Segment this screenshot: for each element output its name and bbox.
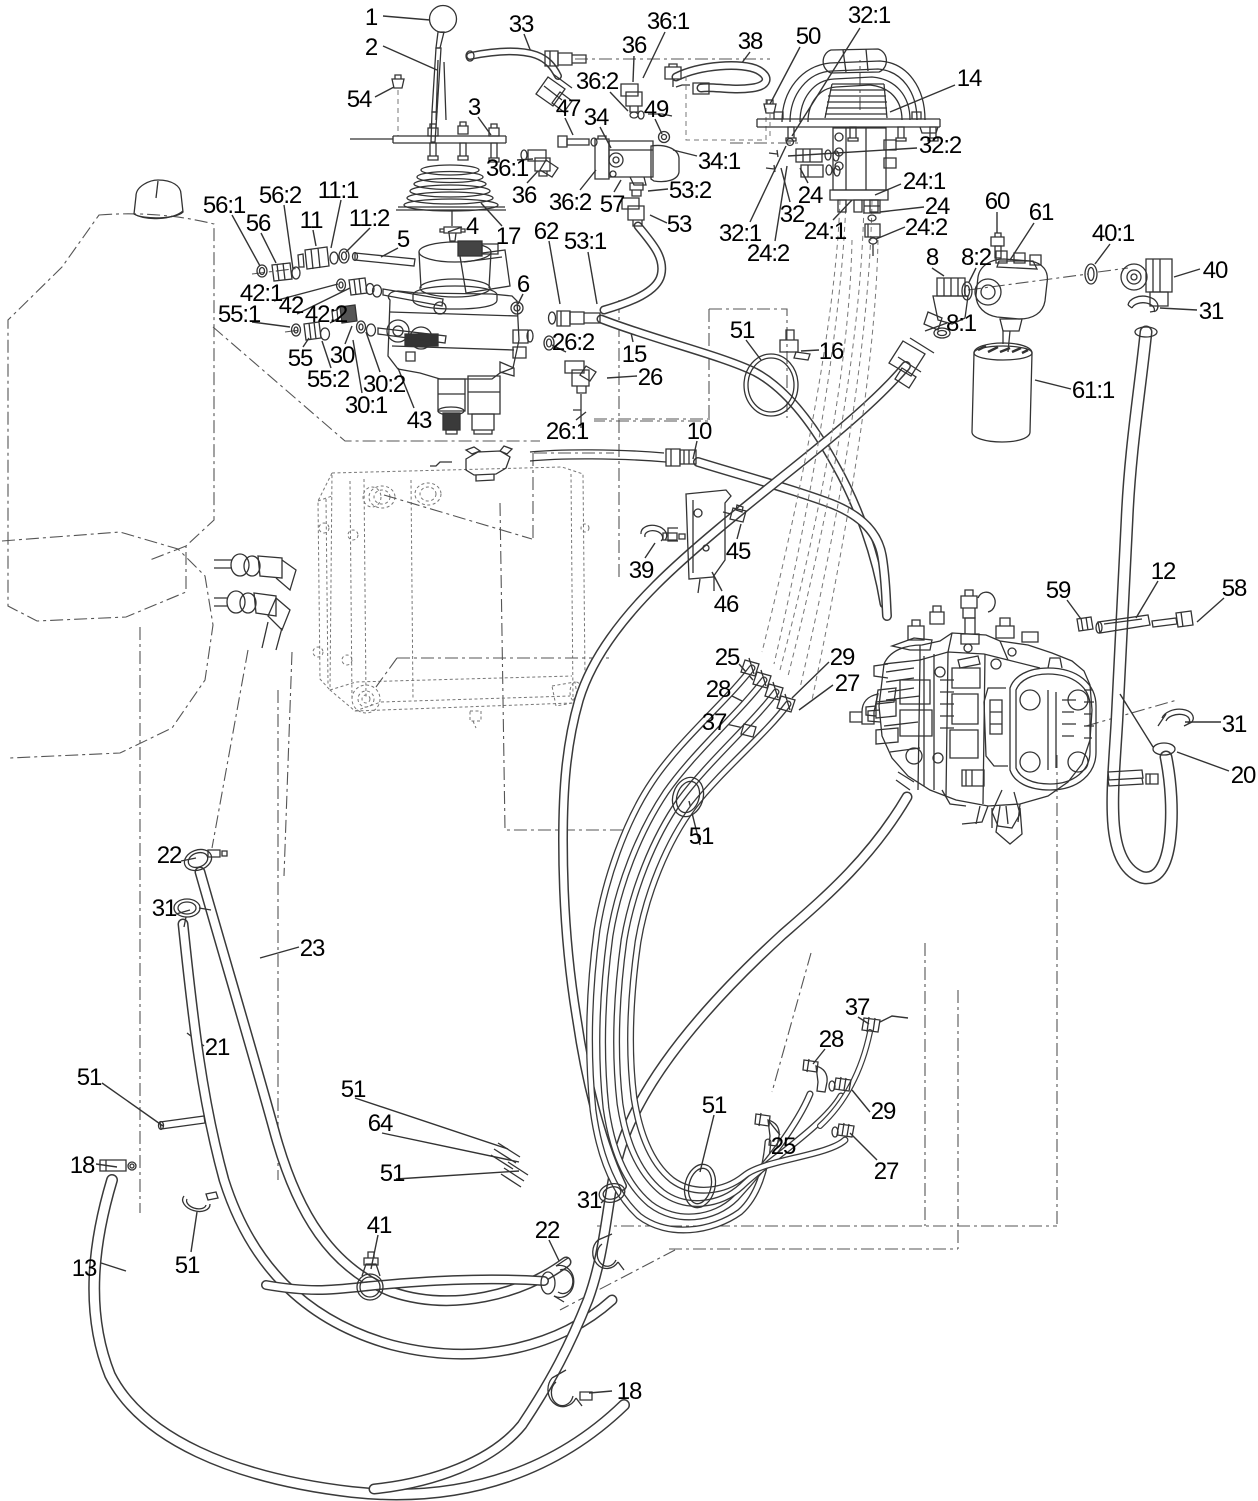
svg-text:24:1: 24:1 <box>804 218 847 245</box>
svg-text:8:2: 8:2 <box>961 244 992 271</box>
svg-text:18: 18 <box>70 1152 95 1179</box>
svg-text:36:2: 36:2 <box>576 68 619 95</box>
svg-text:11:2: 11:2 <box>349 205 390 232</box>
svg-text:39: 39 <box>629 557 654 584</box>
svg-text:6: 6 <box>517 271 530 298</box>
svg-text:62: 62 <box>534 218 559 245</box>
svg-text:24:2: 24:2 <box>905 214 948 241</box>
svg-text:8:1: 8:1 <box>946 310 977 337</box>
svg-text:30: 30 <box>330 342 355 369</box>
svg-text:24:1: 24:1 <box>903 168 946 195</box>
svg-text:47: 47 <box>556 95 581 122</box>
svg-text:49: 49 <box>644 96 669 123</box>
svg-text:37: 37 <box>702 709 727 736</box>
svg-text:45: 45 <box>726 538 751 565</box>
svg-text:41: 41 <box>367 1212 392 1239</box>
svg-text:31: 31 <box>1222 711 1247 738</box>
svg-text:33: 33 <box>509 11 534 38</box>
svg-text:3: 3 <box>468 94 481 121</box>
svg-text:28: 28 <box>706 676 731 703</box>
svg-text:58: 58 <box>1222 575 1247 602</box>
svg-text:18: 18 <box>617 1378 642 1405</box>
svg-text:29: 29 <box>830 644 855 671</box>
svg-text:5: 5 <box>397 226 410 253</box>
svg-text:51: 51 <box>730 317 755 344</box>
svg-text:32: 32 <box>780 201 805 228</box>
svg-text:38: 38 <box>738 28 763 55</box>
svg-text:27: 27 <box>874 1158 899 1185</box>
svg-text:16: 16 <box>819 338 844 365</box>
svg-text:51: 51 <box>702 1092 727 1119</box>
svg-text:32:2: 32:2 <box>919 132 962 159</box>
svg-text:1: 1 <box>365 4 378 31</box>
svg-text:10: 10 <box>687 418 712 445</box>
svg-text:36:1: 36:1 <box>486 155 529 182</box>
svg-text:31: 31 <box>1199 298 1224 325</box>
svg-text:53:2: 53:2 <box>669 177 712 204</box>
svg-text:13: 13 <box>72 1255 97 1282</box>
svg-text:26: 26 <box>638 364 663 391</box>
svg-text:53:1: 53:1 <box>564 228 607 255</box>
svg-text:14: 14 <box>957 65 982 92</box>
svg-text:17: 17 <box>496 223 521 250</box>
svg-text:59: 59 <box>1046 577 1071 604</box>
svg-text:57: 57 <box>600 191 625 218</box>
svg-text:51: 51 <box>341 1076 366 1103</box>
svg-text:30:1: 30:1 <box>345 392 388 419</box>
svg-text:31: 31 <box>577 1187 602 1214</box>
svg-text:31: 31 <box>152 895 177 922</box>
svg-text:60: 60 <box>985 188 1010 215</box>
svg-text:34:1: 34:1 <box>698 148 741 175</box>
svg-text:23: 23 <box>300 935 325 962</box>
svg-text:50: 50 <box>796 23 821 50</box>
svg-text:36: 36 <box>622 32 647 59</box>
svg-text:43: 43 <box>407 407 432 434</box>
svg-text:32:1: 32:1 <box>848 2 891 29</box>
svg-text:27: 27 <box>835 670 860 697</box>
svg-text:46: 46 <box>714 591 739 618</box>
svg-text:22: 22 <box>535 1217 560 1244</box>
svg-text:56: 56 <box>246 210 271 237</box>
svg-text:2: 2 <box>365 34 378 61</box>
svg-text:11: 11 <box>300 207 323 234</box>
svg-text:25: 25 <box>715 644 740 671</box>
svg-text:36:2: 36:2 <box>549 189 592 216</box>
svg-text:28: 28 <box>819 1026 844 1053</box>
svg-text:37: 37 <box>845 994 870 1021</box>
svg-text:11:1: 11:1 <box>318 177 359 204</box>
svg-text:26:2: 26:2 <box>552 329 595 356</box>
svg-text:20: 20 <box>1231 762 1256 789</box>
svg-text:56:2: 56:2 <box>259 182 302 209</box>
svg-text:61: 61 <box>1029 199 1054 226</box>
svg-text:26:1: 26:1 <box>546 418 589 445</box>
svg-text:61:1: 61:1 <box>1072 377 1115 404</box>
svg-text:54: 54 <box>347 86 372 113</box>
svg-text:51: 51 <box>175 1252 200 1279</box>
svg-text:40: 40 <box>1203 257 1228 284</box>
svg-text:40:1: 40:1 <box>1092 220 1135 247</box>
svg-text:51: 51 <box>77 1064 102 1091</box>
svg-text:36: 36 <box>512 182 537 209</box>
svg-text:29: 29 <box>871 1098 896 1125</box>
svg-text:21: 21 <box>205 1034 230 1061</box>
svg-text:22: 22 <box>157 842 182 869</box>
svg-text:24:2: 24:2 <box>747 240 790 267</box>
svg-text:12: 12 <box>1151 558 1176 585</box>
svg-text:51: 51 <box>380 1160 405 1187</box>
svg-text:8: 8 <box>926 244 939 271</box>
svg-text:56:1: 56:1 <box>203 192 246 219</box>
svg-text:34: 34 <box>584 104 609 131</box>
svg-text:55:2: 55:2 <box>307 366 350 393</box>
svg-text:4: 4 <box>466 213 479 240</box>
svg-text:53: 53 <box>667 211 692 238</box>
svg-text:25: 25 <box>771 1133 796 1160</box>
svg-text:55:1: 55:1 <box>218 301 261 328</box>
svg-text:42: 42 <box>279 292 304 319</box>
svg-text:36:1: 36:1 <box>647 8 690 35</box>
svg-text:64: 64 <box>368 1110 393 1137</box>
svg-text:51: 51 <box>689 823 714 850</box>
svg-text:42:2: 42:2 <box>305 301 348 328</box>
